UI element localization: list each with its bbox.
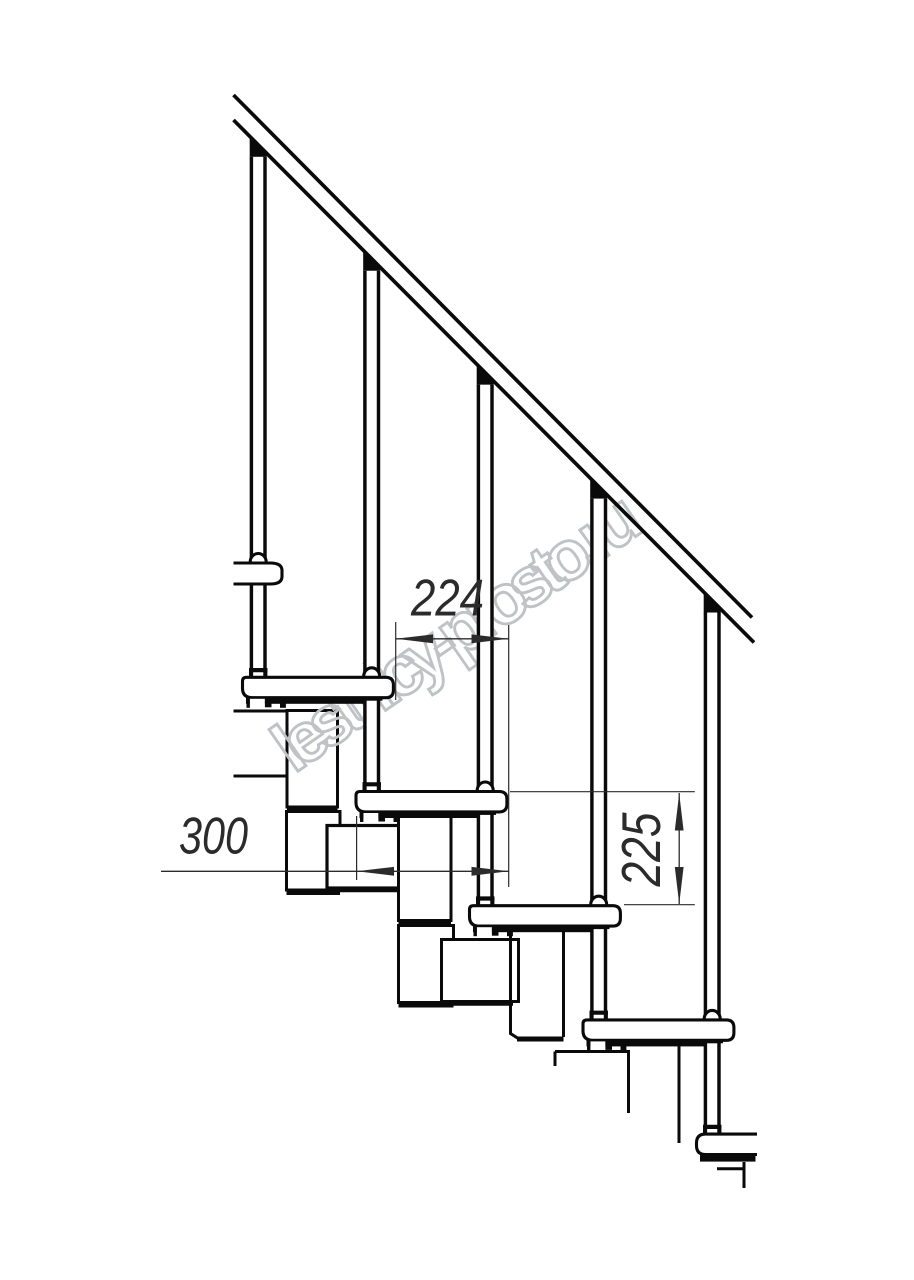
svg-text:224: 224 xyxy=(410,570,484,628)
svg-text:300: 300 xyxy=(179,808,248,866)
svg-text:225: 225 xyxy=(610,812,672,887)
